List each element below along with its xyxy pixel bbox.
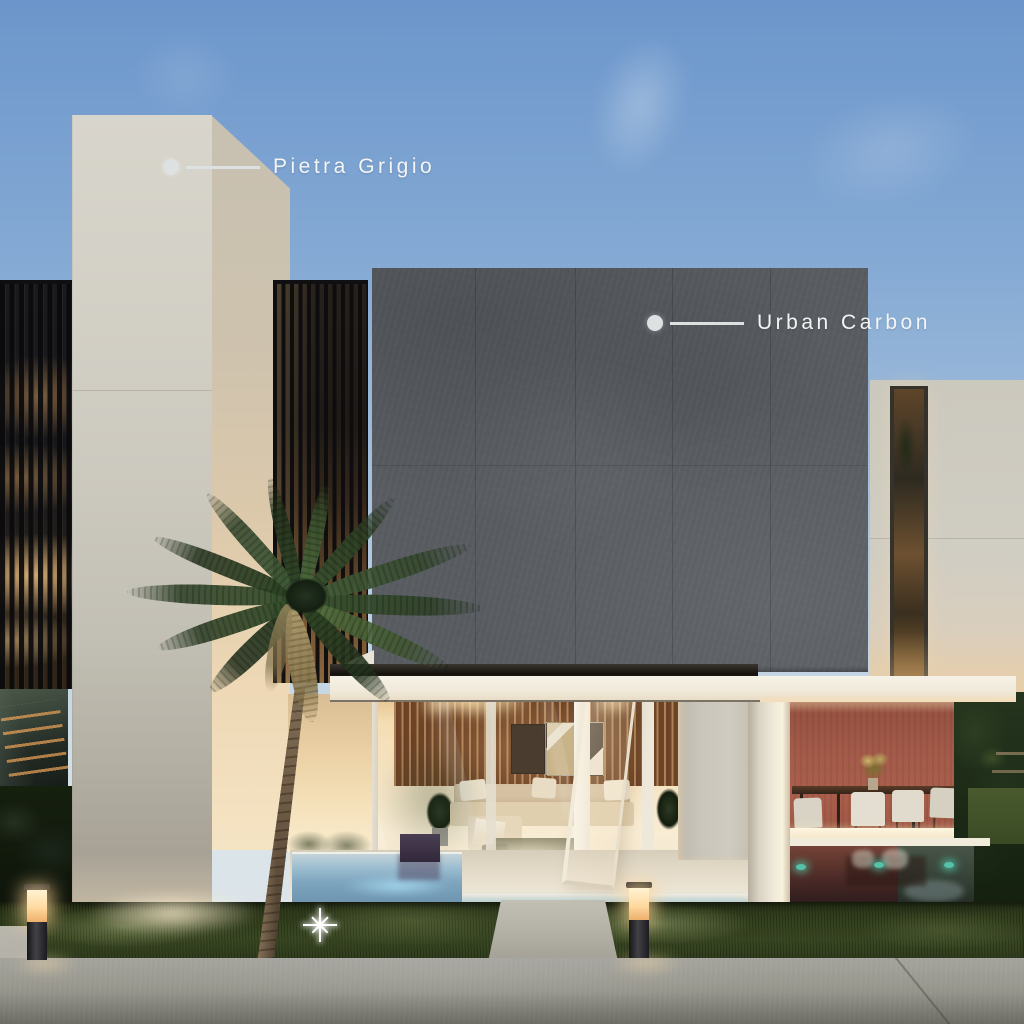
bollard-lamp: [629, 888, 649, 920]
bollard-lamp: [27, 890, 47, 922]
dining-chair: [892, 790, 924, 822]
bollard-body: [27, 922, 47, 960]
left-louver-screen: [0, 283, 72, 689]
callout-line: [670, 322, 744, 325]
pool-coping: [786, 838, 990, 846]
pool-light: [796, 864, 806, 870]
callout-label: Pietra Grigio: [273, 155, 435, 179]
callout-dot: [163, 159, 179, 175]
walkway-slab: [488, 900, 618, 962]
louver-top-cap: [273, 280, 368, 284]
bollard-light: [626, 882, 652, 960]
back-lawn-slope: [968, 788, 1024, 844]
ground-sparkle-light: [303, 908, 337, 942]
dark-sculpture: [400, 834, 440, 862]
right-stone-wall: [870, 380, 1024, 692]
louver-top-cap: [0, 280, 72, 284]
callout-line: [186, 166, 260, 169]
left-glass-stairwell: [0, 689, 68, 789]
garden-fence-rail: [996, 752, 1024, 755]
dining-chair: [851, 792, 885, 826]
bottom-vignette: [0, 992, 1024, 1024]
front-wall-section: [678, 694, 752, 860]
white-column: [748, 692, 790, 918]
bollard-light: [24, 884, 50, 962]
garden-fence-rail: [992, 770, 1024, 773]
pool-light: [944, 862, 954, 868]
canopy-core: [284, 578, 328, 614]
floating-stairs: [0, 699, 69, 779]
chair-reflection: [882, 849, 908, 869]
window-plant-silhouette: [896, 417, 916, 477]
material-callout-urban-carbon: Urban Carbon: [647, 311, 931, 335]
panel-seam: [575, 268, 576, 672]
architectural-render: Pietra Grigio Urban Carbon: [0, 0, 1024, 1024]
glass-mullion: [642, 688, 654, 860]
bollard-body: [629, 920, 649, 958]
callout-dot: [647, 315, 663, 331]
fascia-warm-underglow: [760, 694, 1016, 702]
dining-chair: [793, 798, 822, 829]
callout-label: Urban Carbon: [757, 311, 931, 335]
pool-light: [874, 862, 884, 868]
vase: [868, 778, 878, 790]
material-callout-pietra-grigio: Pietra Grigio: [163, 155, 435, 179]
cloud-wisp: [546, 0, 735, 225]
palm-canopy: [140, 430, 500, 730]
flower-bouquet: [854, 748, 894, 780]
panel-seam: [73, 390, 212, 391]
chair-reflection: [852, 850, 874, 868]
cloud-wisp: [745, 41, 1024, 259]
